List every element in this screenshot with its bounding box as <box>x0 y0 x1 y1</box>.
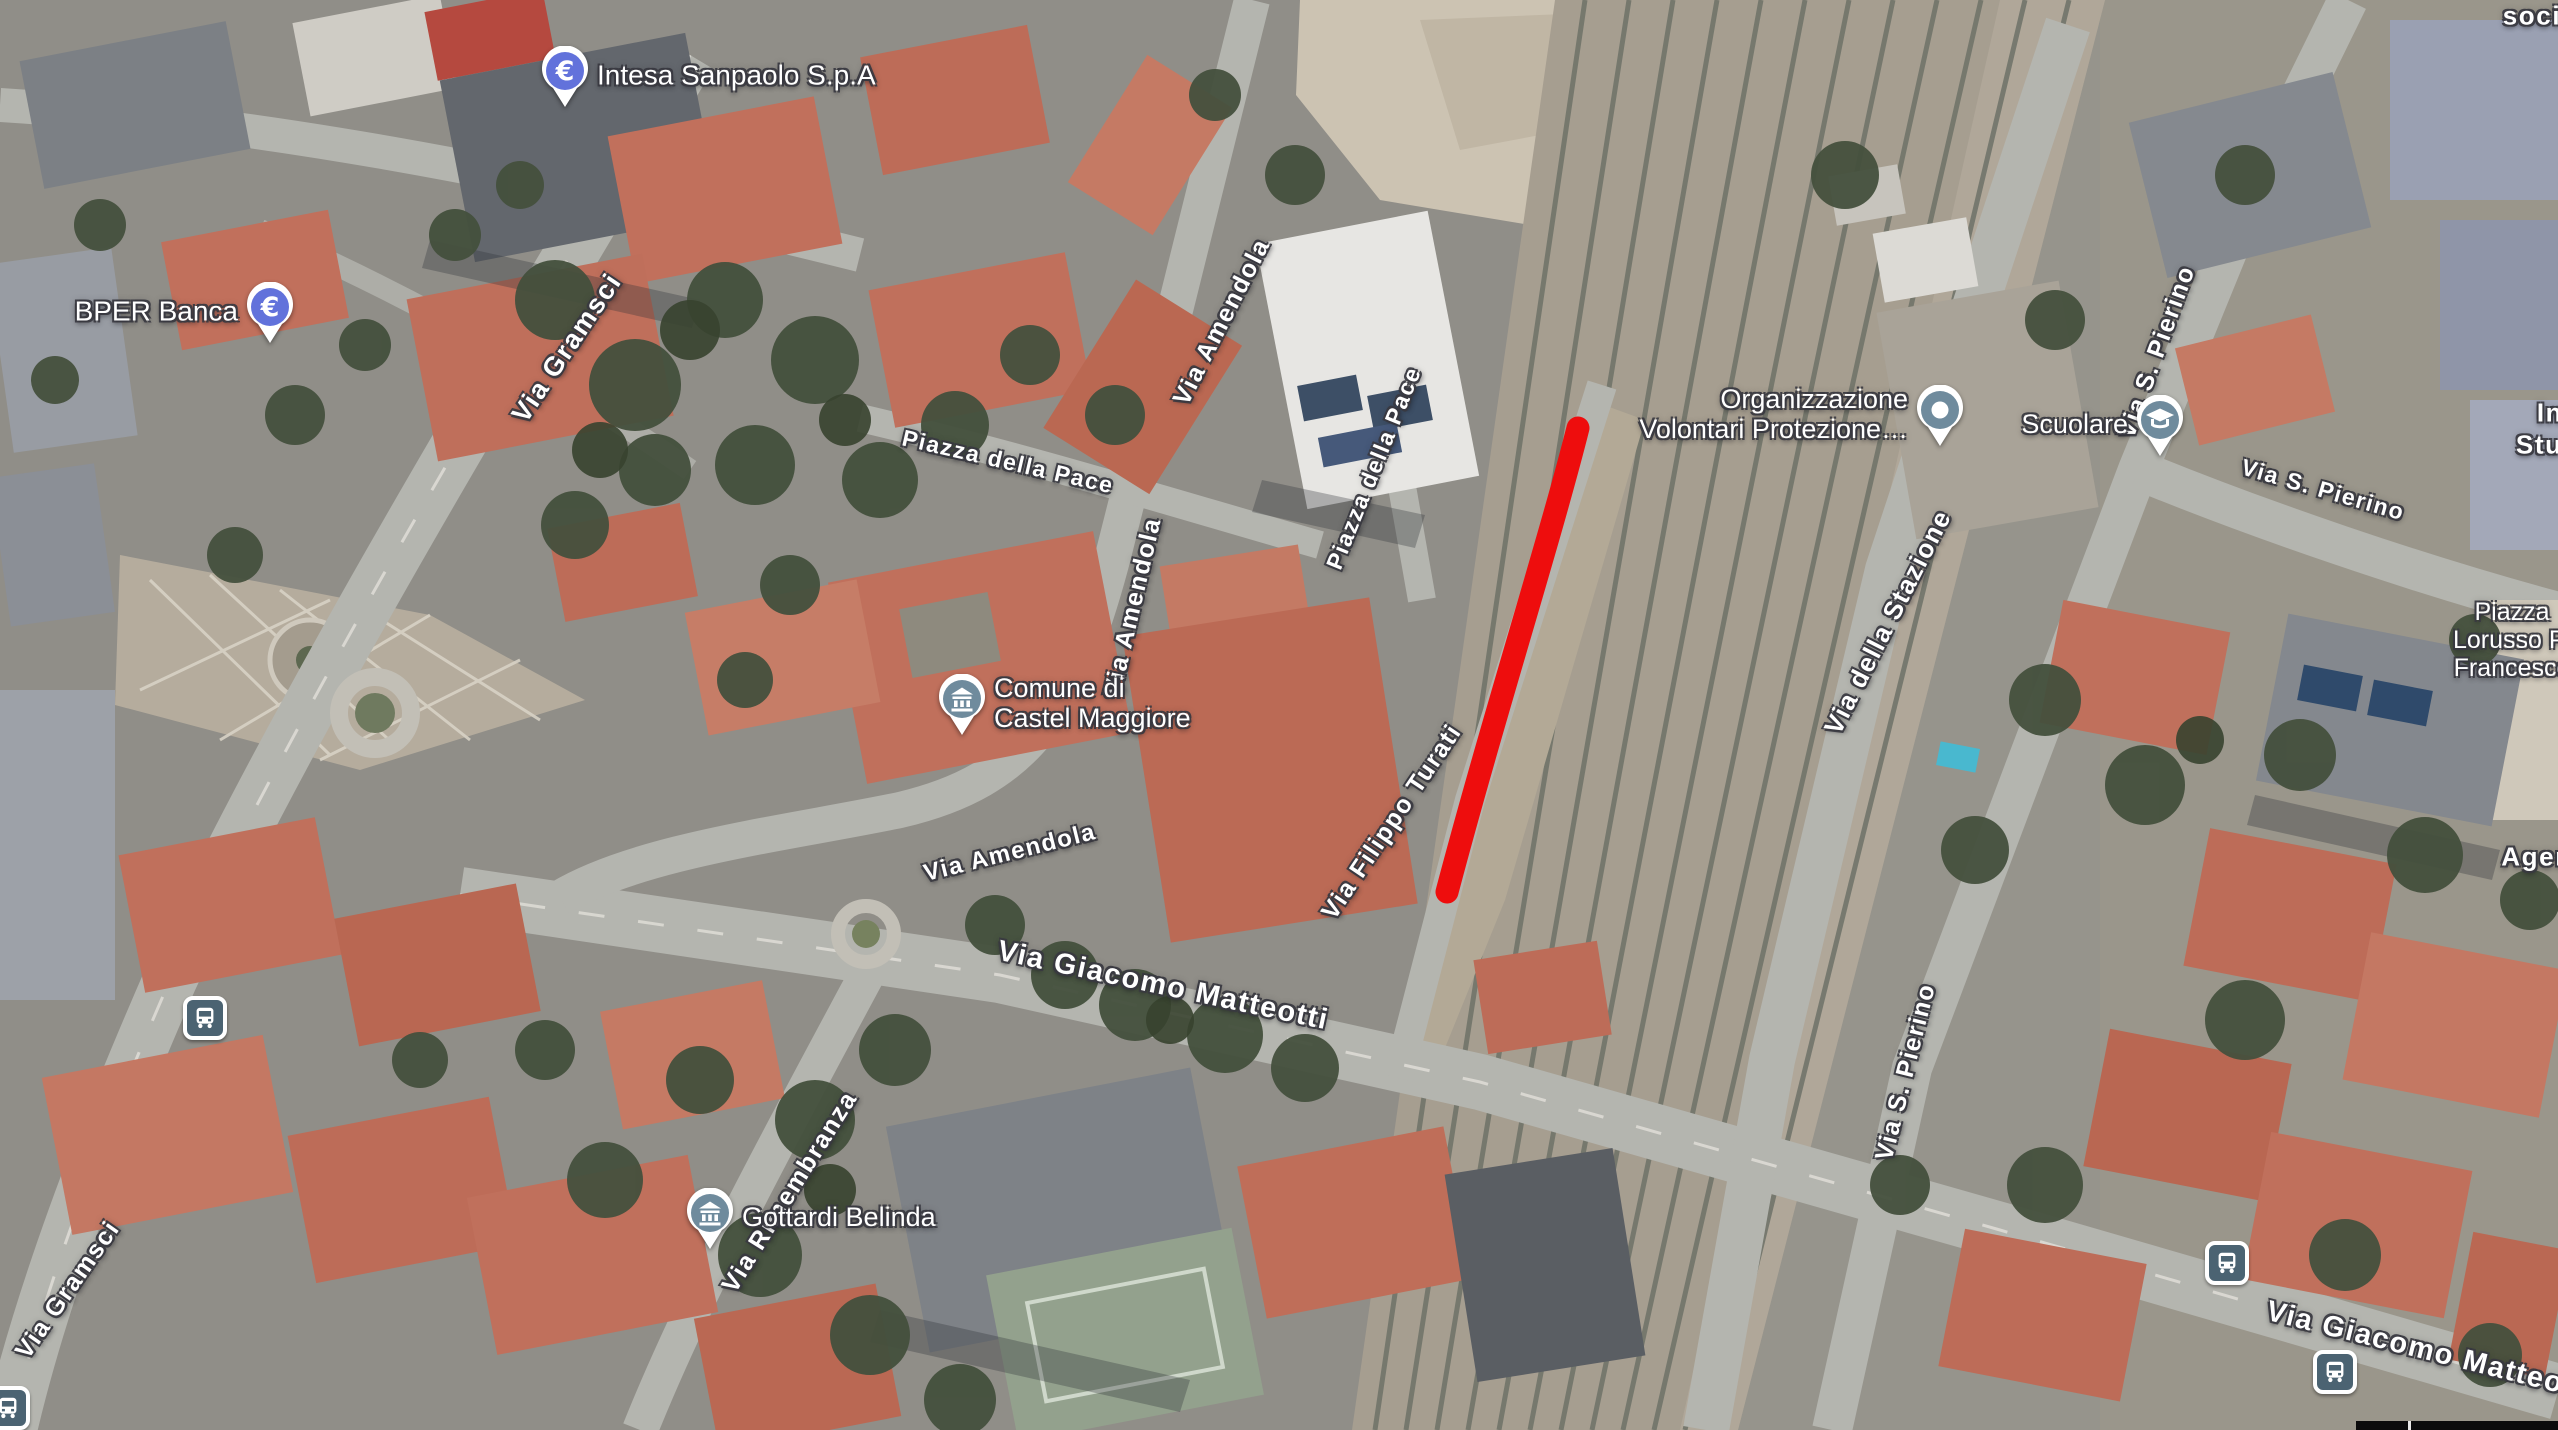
svg-text:€: € <box>555 56 575 87</box>
poi-label-piazza-lorusso-francesco: PiazzaLorusso PiFrancesco <box>2453 598 2558 682</box>
bottom-ui-strip <box>2356 1421 2558 1430</box>
map-canvas[interactable]: Via GramsciVia GramsciPiazza della PaceV… <box>0 0 2558 1430</box>
euro-pin-icon[interactable]: € <box>244 282 296 349</box>
government-pin-icon[interactable] <box>684 1188 736 1255</box>
bus-stop-icon[interactable] <box>0 1386 30 1430</box>
school-pin-icon[interactable] <box>2134 395 2186 462</box>
poi-label-gottardi-belinda: Gottardi Belinda <box>742 1202 936 1232</box>
poi-label-comune-castel-maggiore: Comune diCastel Maggiore <box>994 673 1191 733</box>
bus-stop-icon[interactable] <box>2205 1241 2249 1285</box>
poi-label-bper-banca: BPER Banca <box>75 295 238 326</box>
poi-label-intesa-sanpaolo: Intesa Sanpaolo S.p.A <box>597 59 876 90</box>
euro-pin-icon[interactable]: € <box>539 46 591 113</box>
poi-label-scuolare: Scuolare <box>2021 409 2128 439</box>
place-pin-icon[interactable] <box>1914 385 1966 452</box>
poi-label-organizzazione-volontari: OrganizzazioneVolontari Protezione… <box>1639 384 1908 444</box>
government-pin-icon[interactable] <box>936 674 988 741</box>
bus-stop-icon[interactable] <box>183 996 227 1040</box>
satellite-imagery <box>0 0 2558 1430</box>
svg-text:€: € <box>260 292 280 323</box>
bus-stop-icon[interactable] <box>2313 1350 2357 1394</box>
